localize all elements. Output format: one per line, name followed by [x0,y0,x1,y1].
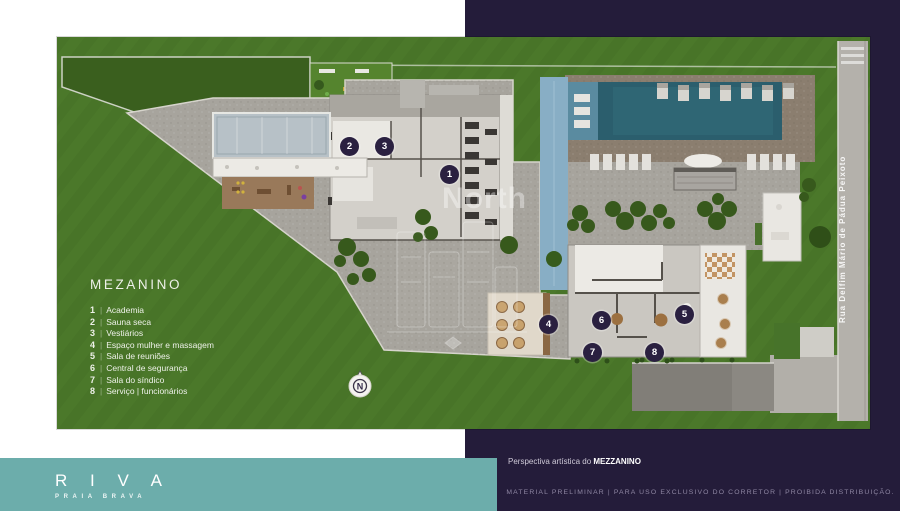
site-plan-render: N North MEZANINO 1 | Academia 2 | Sauna … [57,37,870,429]
plan-legend: MEZANINO 1 | Academia 2 | Sauna seca 3 |… [90,277,214,398]
riva-logo-subtitle: PRAIA BRAVA [55,494,171,500]
compass-letter: N [357,382,364,392]
plan-marker-8: 8 [645,343,664,362]
plan-marker-6: 6 [592,311,611,330]
disclaimer-text: MATERIAL PRELIMINAR | PARA USO EXCLUSIVO… [505,489,896,496]
legend-item: 6 | Central de segurança [90,363,214,375]
plan-marker-4: 4 [539,315,558,334]
legend-divider: | [100,305,102,317]
legend-item: 5 | Sala de reuniões [90,351,214,363]
plan-marker-3: 3 [375,137,394,156]
riva-logo: R I V A PRAIA BRAVA [55,471,171,500]
plan-marker-1: 1 [440,165,459,184]
mezzanine-wing [700,245,746,357]
caption-bold: MEZZANINO [593,457,641,466]
legend-divider: | [100,386,102,398]
plan-marker-2: 2 [340,137,359,156]
legend-divider: | [100,351,102,363]
glass-pool-roof [213,113,330,158]
legend-item: 8 | Serviço | funcionários [90,386,214,398]
legend-item: 7 | Sala do síndico [90,375,214,387]
plan-marker-7: 7 [583,343,602,362]
legend-item: 2 | Sauna seca [90,317,214,329]
gym-hall [213,158,367,177]
legend-divider: | [100,363,102,375]
legend-divider: | [100,328,102,340]
plan-marker-5: 5 [675,305,694,324]
legend-divider: | [100,317,102,329]
caption-prefix: Perspectiva artística do [508,457,593,466]
perspective-caption: Perspectiva artística do MEZZANINO [508,457,868,466]
legend-item: 3 | Vestiários [90,328,214,340]
legend-divider: | [100,340,102,352]
street-name-label: Rua Delfim Mário de Pádua Peixoto [838,132,866,347]
legend-title: MEZANINO [90,277,214,292]
fitness-terrace [222,177,314,209]
footer-brand-bar: R I V A PRAIA BRAVA [0,458,497,511]
riva-logo-title: R I V A [55,471,171,491]
lap-pool [540,77,568,290]
legend-divider: | [100,375,102,387]
brochure-page: N North MEZANINO 1 | Academia 2 | Sauna … [0,0,900,511]
pool-entry-steps [674,168,736,190]
legend-item: 1 | Academia [90,305,214,317]
watermark-text: North [442,182,527,216]
legend-item: 4 | Espaço mulher e massagem [90,340,214,352]
